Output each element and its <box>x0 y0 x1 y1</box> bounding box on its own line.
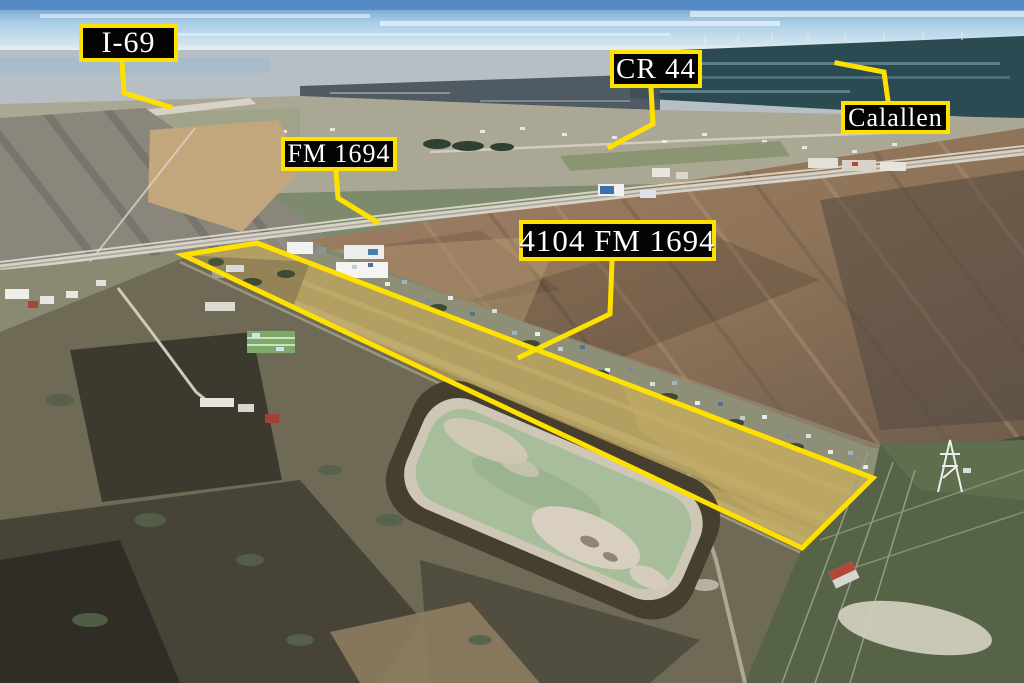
road-label-fm1694: FM 1694 <box>281 137 397 171</box>
greenhouse-plot <box>247 331 295 353</box>
road-label-cr44: CR 44 <box>610 50 702 88</box>
road-label-i69: I-69 <box>79 24 178 62</box>
annotated-aerial-photo: I-69 FM 1694 4104 FM 1694 CR 44 Calallen <box>0 0 1024 683</box>
town-label-calallen: Calallen <box>841 101 950 134</box>
property-address-label: 4104 FM 1694 <box>519 220 716 261</box>
